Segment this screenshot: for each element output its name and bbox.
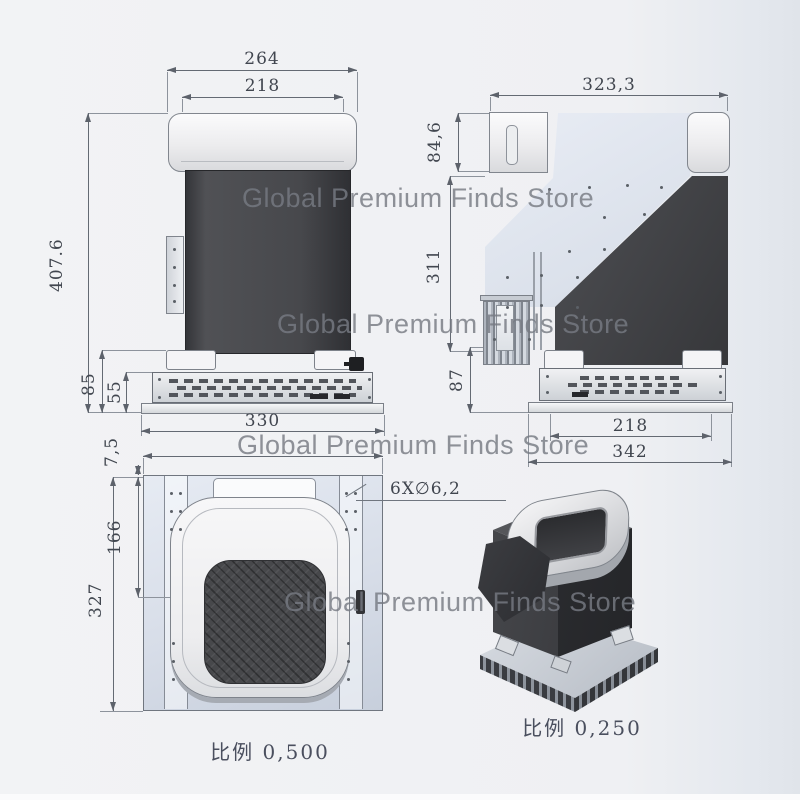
front-top-cap-seam	[181, 161, 344, 162]
dim-label-55: 55	[104, 373, 126, 411]
connector-block	[310, 394, 328, 399]
dim-label-330: 330	[141, 411, 384, 431]
dim-line-342	[528, 462, 732, 463]
front-knob-stem	[344, 362, 350, 366]
bottom-scale-label: 比例 0,500	[200, 736, 340, 765]
extension-line	[88, 113, 168, 114]
connector-row	[580, 390, 685, 394]
dim-line-323	[490, 95, 728, 96]
hole-callout-underline	[356, 500, 506, 501]
connector-block	[334, 394, 350, 399]
dim-label-85: 85	[78, 364, 100, 404]
iso-scale-label: 比例 0,250	[512, 712, 652, 741]
side-foot-left	[544, 350, 584, 370]
side-top-cap	[687, 112, 730, 173]
side-base-plate	[528, 402, 733, 413]
watermark: Global Premium Finds Store	[242, 183, 594, 214]
front-top-cap	[168, 113, 357, 172]
side-box-slot	[506, 125, 518, 165]
dim-label-264: 264	[167, 49, 357, 69]
watermark: Global Premium Finds Store	[237, 430, 589, 461]
dim-label-87: 87	[446, 352, 468, 408]
extension-line	[126, 372, 152, 373]
dim-line-75	[138, 465, 139, 475]
side-front-box	[489, 112, 548, 173]
panel-screw-dots	[158, 378, 161, 381]
dim-label-166: 166	[104, 515, 126, 559]
connector-row	[177, 386, 362, 390]
connector-row	[568, 383, 697, 387]
dim-label-218: 218	[182, 76, 343, 96]
extension-line	[88, 412, 141, 413]
dim-line-166	[138, 477, 139, 597]
bracket-screw-dots	[173, 248, 176, 251]
extension-line	[100, 711, 143, 712]
dim-line-327	[113, 477, 114, 711]
dim-label-327: 327	[85, 577, 107, 623]
dim-line-264	[167, 70, 357, 71]
watermark: Global Premium Finds Store	[277, 309, 629, 340]
drawing-canvas: 264 218 407.6 85 55 330	[0, 0, 800, 800]
extension-line	[458, 113, 489, 114]
dim-line-87	[470, 347, 471, 413]
extension-line	[470, 412, 528, 413]
extension-line	[167, 72, 168, 112]
extension-line	[102, 350, 166, 351]
bottom-mesh-grille	[204, 560, 326, 684]
dim-line-55	[126, 372, 127, 413]
connector-block	[572, 392, 588, 397]
dim-label-75: 7,5	[101, 437, 123, 467]
dim-line-218	[182, 97, 343, 98]
extension-line	[182, 99, 183, 112]
dim-label-311: 311	[423, 238, 445, 294]
connector-row	[580, 376, 685, 380]
dim-label-846: 84,6	[424, 114, 446, 170]
extension-line	[490, 97, 491, 111]
bottom-edge-strip	[0, 794, 800, 800]
front-foot-left	[166, 350, 216, 370]
extension-line	[450, 176, 485, 177]
extension-line	[458, 171, 489, 172]
front-connector-panel	[152, 372, 373, 403]
side-connector-panel	[539, 368, 726, 401]
dim-line-85	[102, 350, 103, 413]
dim-line-846	[458, 113, 459, 172]
extension-line	[138, 597, 170, 598]
extension-line	[143, 458, 144, 474]
front-knob	[349, 357, 364, 371]
extension-line	[711, 414, 712, 441]
extension-line	[727, 97, 728, 111]
extension-line	[343, 99, 344, 112]
hole-callout-label: 6X∅6,2	[390, 479, 510, 499]
connector-row	[169, 379, 356, 383]
panel-screw-dots	[546, 375, 549, 378]
rail-hole-dots	[170, 492, 173, 495]
extension-line	[357, 72, 358, 112]
dim-label-407: 407.6	[46, 223, 68, 307]
side-foot-right	[682, 350, 722, 370]
watermark: Global Premium Finds Store	[284, 587, 636, 618]
dim-label-323: 323,3	[490, 75, 728, 95]
